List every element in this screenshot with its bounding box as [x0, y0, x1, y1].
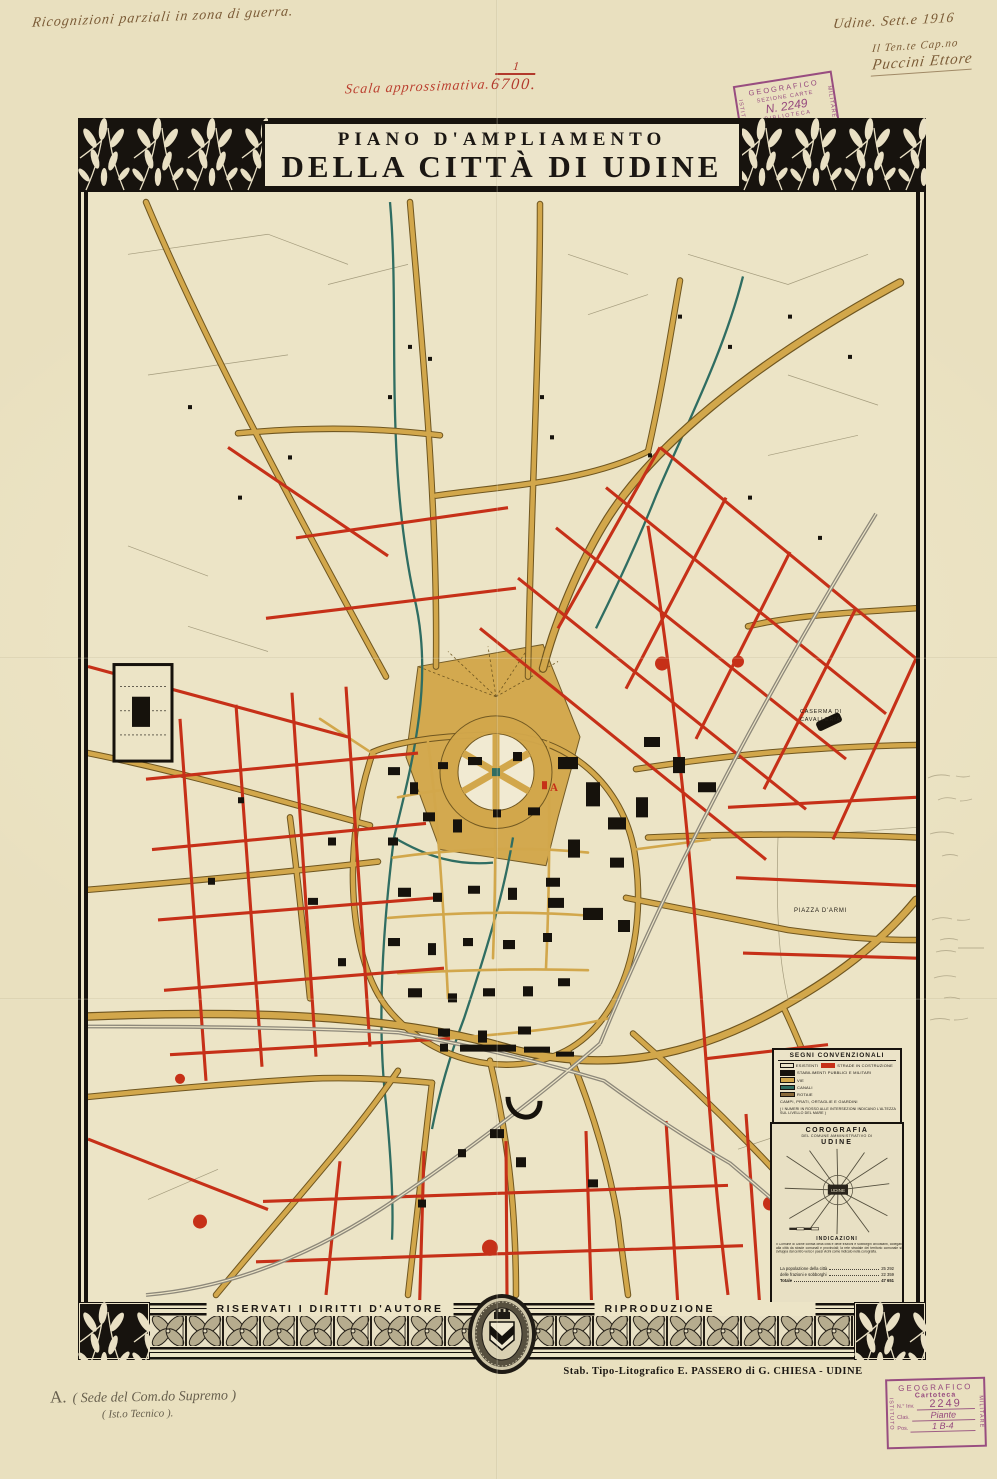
legend-label: STABILIMENTI PUBBLICI E MILITARI — [797, 1070, 871, 1075]
stamp-clas-label: Clas. — [897, 1415, 910, 1421]
stat-row: delle frazioni e sobborghi22 359 — [780, 1272, 894, 1277]
legend-label: VIE — [797, 1078, 804, 1083]
map-frame: PIANO D'AMPLIAMENTO DELLA CITTÀ DI UDINE — [78, 118, 926, 1360]
buildings — [188, 315, 852, 1208]
map-title-line2: DELLA CITTÀ DI UDINE — [265, 151, 739, 183]
border-right-inner — [916, 192, 920, 1302]
corografia-minimap: UDINE — [777, 1147, 897, 1235]
legend-swatch-black — [780, 1070, 795, 1076]
map-area: CASERMA DI CAVALLERIA PIAZZA D'ARMI A SE… — [78, 192, 926, 1302]
legend-title: SEGNI CONVENZIONALI — [778, 1052, 896, 1061]
printer-imprint: Stab. Tipo-Litografico E. PASSERO di G. … — [540, 1366, 886, 1377]
seal-crown — [494, 1309, 510, 1319]
pencil-note-line1: A.( Sede del Com.do Supremo ) — [50, 1384, 236, 1407]
rights-reserved-text: RISERVATI I DIRITTI D'AUTORE — [207, 1302, 454, 1316]
legend-swatch-tan — [780, 1077, 795, 1083]
pencil-calculations — [924, 770, 994, 1040]
stamp-pos-label: Pos. — [897, 1426, 908, 1432]
scale-denominator: 6700. — [484, 76, 544, 93]
stamp-inv-label: N.° Inv. — [897, 1404, 915, 1410]
legend-box: SEGNI CONVENZIONALI ESISTENTISTRADE IN C… — [772, 1048, 902, 1124]
minimap-scalebar — [789, 1228, 818, 1230]
caserma-label-line2: CAVALLERIA — [800, 717, 841, 723]
indicazioni-text: Il Comune di Udine consta della città e … — [776, 1243, 902, 1262]
legend-note: ( I NUMERI IN ROSSO ALLE INTERSEZIONI IN… — [780, 1107, 896, 1115]
stat-row: Totale47 651 — [780, 1278, 894, 1283]
pencil-note-text: ( Sede del Com.do Supremo ) — [72, 1388, 236, 1406]
corner-ornament-left — [78, 1302, 150, 1360]
minimap-center-label: UDINE — [831, 1188, 845, 1193]
map-sheet: Ricognizioni parziali in zona di guerra.… — [0, 0, 997, 1479]
border-right-outer — [924, 192, 927, 1302]
stamp-text-militare: MILITARE — [826, 85, 837, 119]
map-labels: CASERMA DI CAVALLERIA PIAZZA D'ARMI A — [542, 709, 847, 914]
cemetery-compound — [114, 665, 172, 762]
indicazioni-title: INDICAZIONI — [772, 1236, 902, 1242]
corografia-title: COROGRAFIA — [772, 1127, 902, 1134]
library-stamp-bottom: ISTITUTO MILITARE GEOGRAFICO Cartoteca N… — [885, 1377, 987, 1450]
corner-ornament-right — [854, 1302, 926, 1360]
legend-row: ESISTENTISTRADE IN COSTRUZIONE — [780, 1063, 896, 1069]
title-banner: PIANO D'AMPLIAMENTO DELLA CITTÀ DI UDINE — [78, 118, 926, 192]
leaf-ornament-right — [736, 118, 926, 192]
legend-swatch-brown — [780, 1092, 795, 1098]
handwritten-date: Udine. Sett.e 1916 — [832, 11, 955, 33]
stamp-pos-value: 1 B-4 — [910, 1421, 975, 1433]
legend-row: VIE — [780, 1077, 896, 1083]
scale-numerator: 1 — [486, 60, 545, 72]
stamp-text-militare-2: MILITARE — [978, 1395, 985, 1428]
legend-label: CANALI — [797, 1085, 813, 1090]
map-title-line1: PIANO D'AMPLIAMENTO — [265, 129, 739, 151]
pencil-note-line2: ( Ist.o Tecnico ). — [102, 1407, 174, 1420]
legend-swatch-teal — [780, 1085, 795, 1091]
piazza-armi-label: PIAZZA D'ARMI — [794, 908, 847, 914]
title-box: PIANO D'AMPLIAMENTO DELLA CITTÀ DI UDINE — [262, 121, 742, 189]
legend-label: ROTAIE — [797, 1092, 813, 1097]
legend-row: ROTAIE — [780, 1092, 896, 1098]
stamp-text-istituto-2: ISTITUTO — [888, 1398, 895, 1431]
legend-row: STABILIMENTI PUBBLICI E MILITARI — [780, 1070, 896, 1076]
fraction-bar — [495, 73, 535, 75]
marker-a-symbol — [542, 781, 547, 789]
marker-a-label: A — [550, 782, 558, 794]
corografia-stats: La popolazione della città25 292delle fr… — [780, 1266, 894, 1283]
scale-label: Scala approssimativa. — [344, 77, 491, 98]
handwritten-note-top-left: Ricognizioni parziali in zona di guerra. — [31, 4, 295, 32]
legend-swatch-white — [780, 1063, 794, 1069]
legend-rows: ESISTENTISTRADE IN COSTRUZIONESTABILIMEN… — [774, 1063, 900, 1104]
border-left-outer — [78, 192, 81, 1302]
legend-label: ESISTENTI — [796, 1063, 818, 1068]
corografia-subtitle: DEL COMUNE AMMINISTRATIVO DI — [772, 1134, 902, 1138]
legend-row: CAMPI, PRATI, ORTAGLIE E GIARDINI — [780, 1099, 896, 1104]
scale-fraction: 1 6700. — [484, 60, 545, 93]
printer-seal — [464, 1292, 540, 1376]
caserma-label-line1: CASERMA DI — [800, 709, 842, 715]
legend-swatch-red — [821, 1063, 835, 1069]
pencil-note-marker: A. — [50, 1387, 67, 1406]
handwritten-signature: Puccini Ettore — [871, 50, 974, 76]
legend-label: CAMPI, PRATI, ORTAGLIE E GIARDINI — [780, 1099, 858, 1104]
legend-row: CANALI — [780, 1085, 896, 1091]
bottom-ornament-band: RISERVATI I DIRITTI D'AUTORE RIPRODUZION… — [78, 1302, 926, 1360]
corografia-name: UDINE — [772, 1139, 902, 1146]
corografia-inset: COROGRAFIA DEL COMUNE AMMINISTRATIVO DI … — [770, 1122, 904, 1302]
legend-label: STRADE IN COSTRUZIONE — [837, 1063, 893, 1068]
leaf-ornament-left — [78, 118, 268, 192]
stat-row: La popolazione della città25 292 — [780, 1266, 894, 1271]
